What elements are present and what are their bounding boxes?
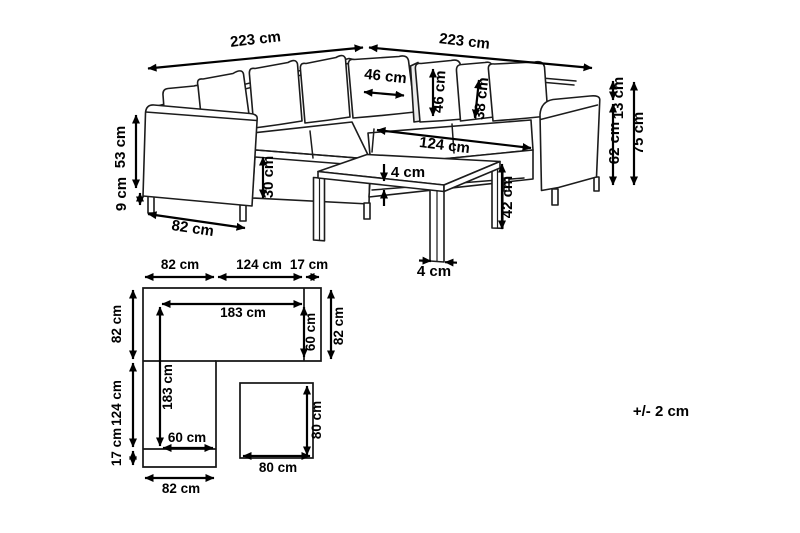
dim-armrest-side-height: 53 cm: [112, 126, 129, 169]
dim-table-leg-width: 4 cm: [417, 263, 451, 280]
dim-table-leg-height: 42 cm: [499, 176, 516, 219]
plan-dim-top-seat: 124 cm: [236, 257, 282, 272]
right-armrest: [540, 96, 600, 191]
plan-dim-left-top: 82 cm: [109, 305, 124, 343]
plan-dim-left-bottom: 17 cm: [109, 428, 124, 466]
plan-dim-right-seat-depth: 60 cm: [303, 313, 318, 351]
table-plan-outline: [240, 383, 313, 458]
dim-leg-height: 9 cm: [113, 177, 130, 211]
plan-dim-bottom-seat-width: 60 cm: [168, 430, 206, 445]
plan-dim-top-side: 17 cm: [290, 257, 328, 272]
plan-dim-inner-width: 183 cm: [220, 305, 266, 320]
tolerance-note: +/- 2 cm: [633, 403, 689, 420]
plan-dim-inner-depth: 183 cm: [160, 364, 175, 410]
plan-dim-right-side: 82 cm: [331, 307, 346, 345]
floor-plan-dimensions: 82 cm 124 cm 17 cm 82 cm 124 cm 17 cm 18…: [109, 257, 346, 496]
left-armrest: [143, 105, 257, 206]
dim-seat-front-height: 30 cm: [260, 156, 277, 199]
dim-table-top-thickness: 4 cm: [391, 164, 425, 181]
plan-dim-bottom-width: 82 cm: [162, 481, 200, 496]
diagram-canvas: 223 cm 223 cm 46 cm 46 cm 38 cm 124 cm 1…: [0, 0, 800, 533]
plan-dim-left-seat: 124 cm: [109, 380, 124, 426]
plan-dim-table-depth: 80 cm: [309, 401, 324, 439]
furniture-dimension-diagram: 223 cm 223 cm 46 cm 46 cm 38 cm 124 cm 1…: [0, 0, 800, 533]
plan-dim-table-width: 80 cm: [259, 460, 297, 475]
plan-dim-top-armrest: 82 cm: [161, 257, 199, 272]
dim-pillow-height: 46 cm: [430, 70, 450, 114]
dim-back-left-length: 223 cm: [229, 28, 281, 51]
dim-armrest-depth: 82 cm: [170, 217, 215, 240]
dim-total-height: 75 cm: [630, 112, 647, 155]
dim-armrest-top-height: 62 cm: [606, 122, 623, 165]
dim-back-right-length: 223 cm: [438, 30, 490, 53]
